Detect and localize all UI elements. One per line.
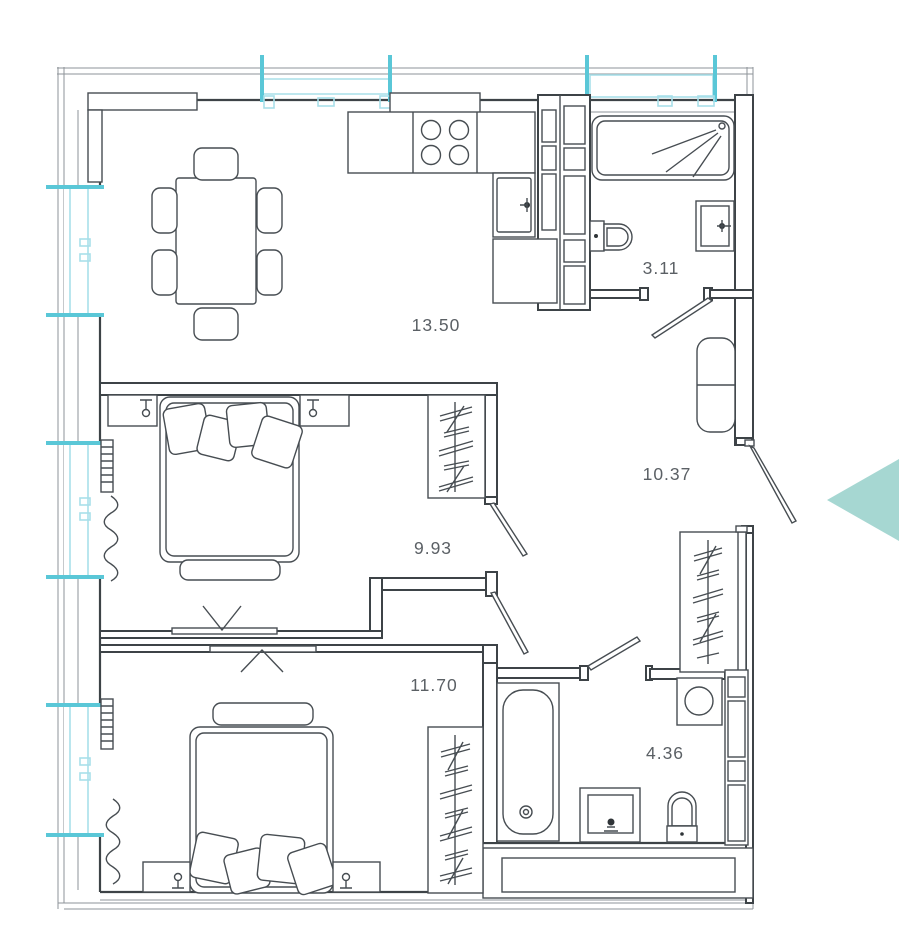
- door-bathroom-small: [652, 298, 712, 338]
- sliding-door-bedroom1: [172, 606, 277, 634]
- room-label-bedroom2: 11.70: [410, 675, 458, 695]
- nightstand-right-bedroom2: [333, 862, 380, 892]
- vent-shaft-bathroom: [725, 670, 748, 845]
- wash-basin-main: [580, 788, 640, 842]
- radiator-bedroom1: [101, 440, 113, 492]
- bathroom-cabinet: [483, 848, 753, 898]
- floor-plan-drawing: 13.50 3.11 10.37 9.93 11.70 4.36: [0, 0, 899, 944]
- toilet-small-bathroom: [590, 221, 632, 251]
- window-left-living: [46, 185, 104, 317]
- entrance-arrow-icon: [827, 459, 899, 541]
- washing-machine: [677, 678, 722, 725]
- wardrobe-hallway: [680, 526, 747, 672]
- wash-basin-small-bathroom: [696, 201, 734, 251]
- door-bathroom-main: [588, 637, 640, 670]
- entrance-door: [745, 440, 796, 523]
- curtain-bedroom1: [104, 496, 118, 581]
- bed-bench: [180, 560, 280, 580]
- sliding-door-bedroom2: [210, 646, 316, 672]
- hallway-bench: [697, 338, 735, 432]
- table-lamp-icon: [143, 410, 150, 417]
- radiator-bedroom2: [101, 699, 113, 749]
- room-label-hallway: 10.37: [643, 464, 692, 484]
- bed-bench: [213, 703, 313, 725]
- toilet-main: [667, 792, 697, 842]
- curtain-bedroom2: [106, 799, 120, 884]
- window-left-bedroom1: [46, 441, 104, 579]
- bed-bedroom1: [160, 397, 304, 580]
- bathtub-main: [497, 683, 559, 841]
- room-label-bathroom-small: 3.11: [643, 258, 680, 278]
- room-label-kitchen-living: 13.50: [412, 315, 461, 335]
- dining-table: [176, 178, 256, 304]
- wardrobe-bedroom1: [428, 395, 485, 498]
- window-top-bathroom: [585, 55, 717, 106]
- room-label-bedroom1: 9.93: [414, 538, 452, 558]
- floor-plan: 13.50 3.11 10.37 9.93 11.70 4.36: [0, 0, 899, 944]
- door-bedroom1: [490, 503, 527, 556]
- nightstand-left-bedroom1: [108, 395, 157, 426]
- table-lamp-icon: [343, 874, 350, 881]
- bed-bedroom2: [189, 703, 338, 896]
- table-lamp-icon: [175, 874, 182, 881]
- nightstand-right-bedroom1: [300, 395, 349, 426]
- window-left-bedroom2: [46, 703, 104, 837]
- wardrobe-bedroom2: [428, 727, 483, 893]
- nightstand-left-bedroom2: [143, 862, 190, 892]
- table-lamp-icon: [310, 410, 317, 417]
- room-label-bathroom-main: 4.36: [646, 743, 684, 763]
- shower-bathtub: [592, 116, 734, 180]
- kitchen-sink: [497, 178, 531, 232]
